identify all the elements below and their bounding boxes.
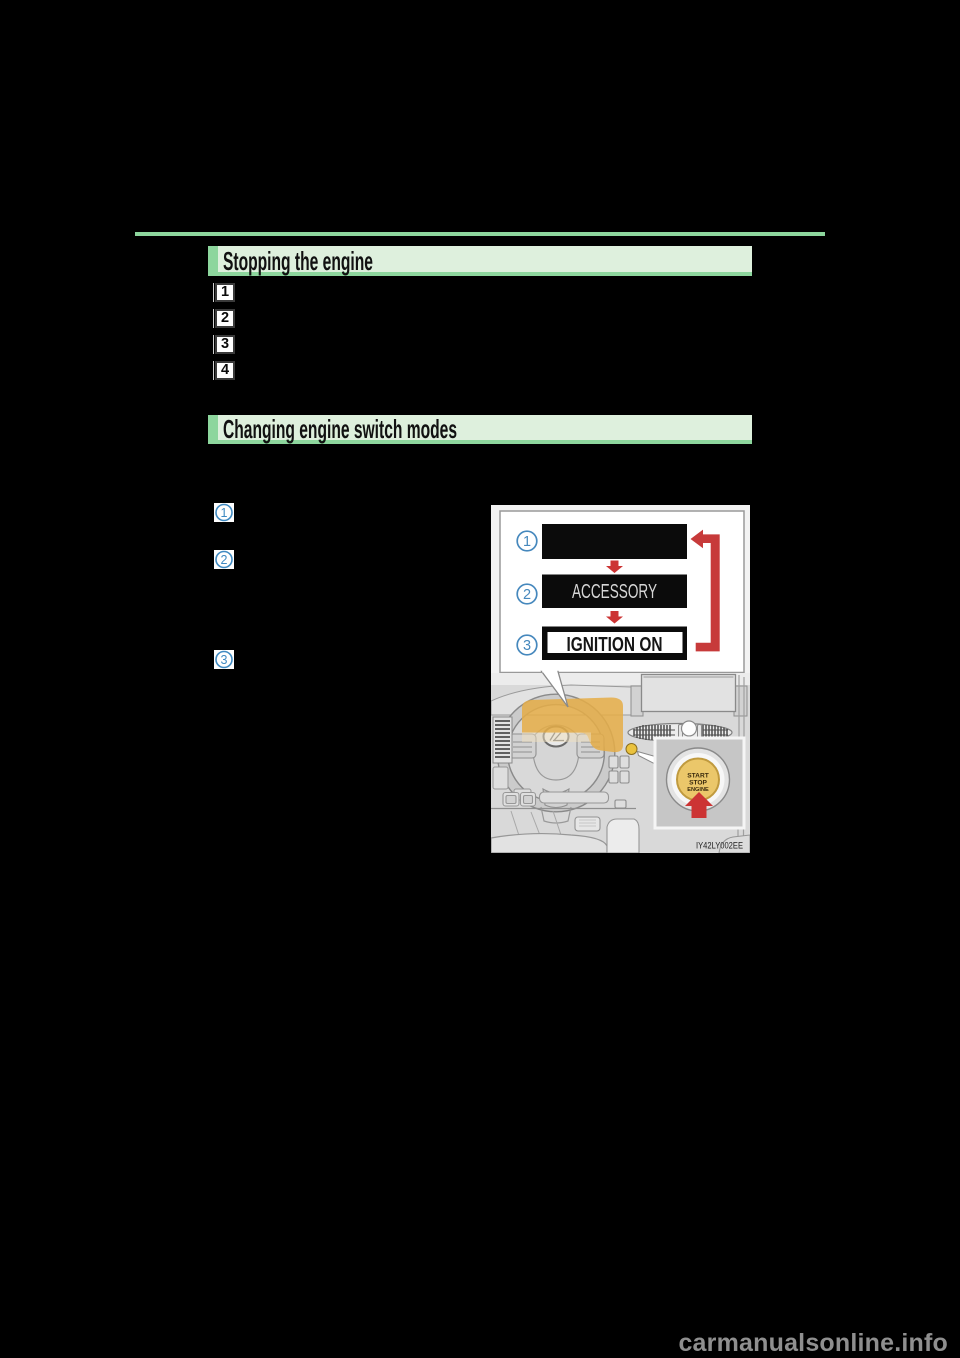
svg-text:ENGINE: ENGINE xyxy=(687,787,709,793)
svg-text:1: 1 xyxy=(221,506,228,520)
svg-text:3: 3 xyxy=(523,638,531,654)
svg-text:ACCESSORY: ACCESSORY xyxy=(572,581,657,603)
svg-text:1: 1 xyxy=(523,534,531,550)
svg-text:IY42LY002EE: IY42LY002EE xyxy=(696,841,743,851)
svg-text:3: 3 xyxy=(221,653,228,667)
svg-text:STOP: STOP xyxy=(689,780,707,787)
svg-text:IGNITION ON: IGNITION ON xyxy=(567,634,663,656)
svg-text:2: 2 xyxy=(221,553,228,567)
svg-text:START: START xyxy=(687,773,709,780)
svg-text:2: 2 xyxy=(523,587,531,603)
